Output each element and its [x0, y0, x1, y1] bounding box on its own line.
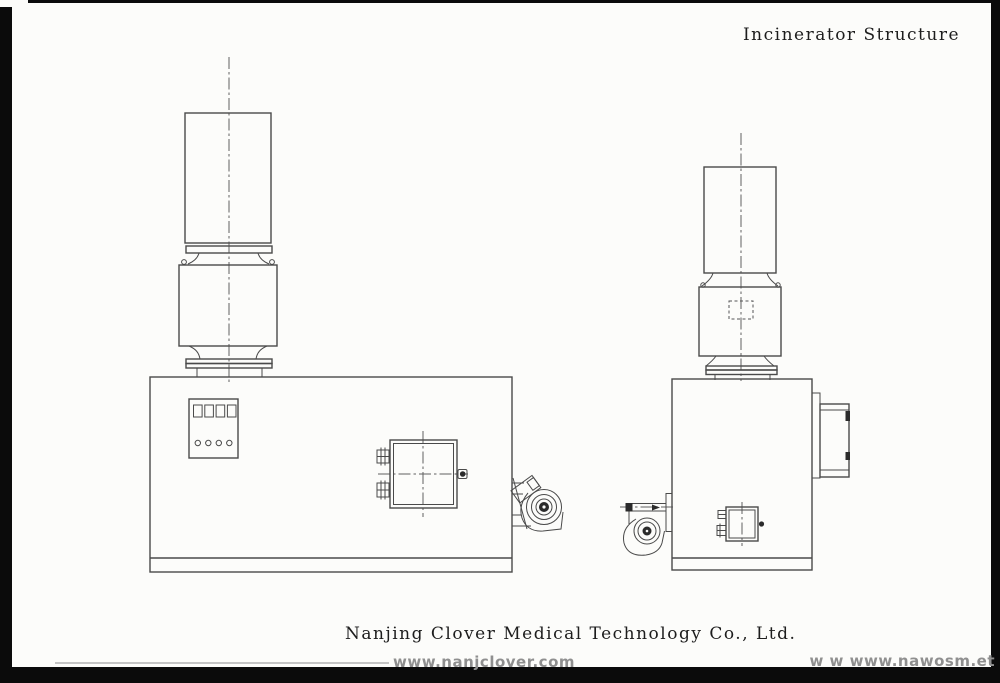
burner-front — [377, 431, 468, 517]
watermark-underline — [55, 662, 389, 664]
damper-handle — [626, 503, 633, 512]
chimney-upper-section — [182, 113, 275, 264]
chimney-mid-section — [699, 287, 781, 380]
fan-motor — [511, 475, 541, 502]
scan-border-left — [0, 7, 12, 683]
panel-knob — [227, 440, 232, 445]
watermark-url-right: w w www.nawosm.et — [809, 652, 995, 670]
pipe-flange — [666, 494, 672, 532]
fuel-inlet-fitting — [377, 481, 389, 500]
scan-border-right — [991, 0, 1000, 683]
fuel-inlet-fitting — [718, 511, 726, 519]
page-title: Incinerator Structure — [743, 25, 960, 45]
fuel-inlet-fitting — [717, 524, 726, 538]
fan-bracket — [513, 478, 527, 529]
watermark-url-center: www.nanjclover.com — [393, 653, 575, 671]
incinerator-technical-drawing — [0, 0, 1000, 683]
scan-border-top — [28, 0, 1000, 3]
control-panel — [189, 399, 238, 458]
hinge — [846, 452, 851, 460]
company-name: Nanjing Clover Medical Technology Co., L… — [345, 624, 745, 644]
incinerator-side-view — [620, 133, 850, 570]
fuel-inlet-fitting — [377, 448, 389, 466]
chimney-mid-section — [179, 265, 277, 377]
scanned-drawing-page: Incinerator Structure Nanjing Clover Med… — [0, 0, 1000, 683]
panel-indicator — [205, 405, 214, 417]
sight-glass-valve — [759, 521, 764, 526]
rear-duct — [812, 393, 850, 478]
flow-arrow — [652, 505, 660, 511]
panel-knob — [216, 440, 221, 445]
panel-indicator — [194, 405, 203, 417]
panel-knob — [195, 440, 200, 445]
incinerator-front-view — [150, 57, 563, 572]
panel-indicator — [216, 405, 225, 417]
panel-indicator — [227, 405, 236, 417]
panel-knob — [206, 440, 211, 445]
burner-side — [717, 502, 764, 546]
blower-fan-front — [511, 475, 563, 531]
hinge — [846, 411, 851, 421]
blower-fan-side — [620, 494, 674, 556]
